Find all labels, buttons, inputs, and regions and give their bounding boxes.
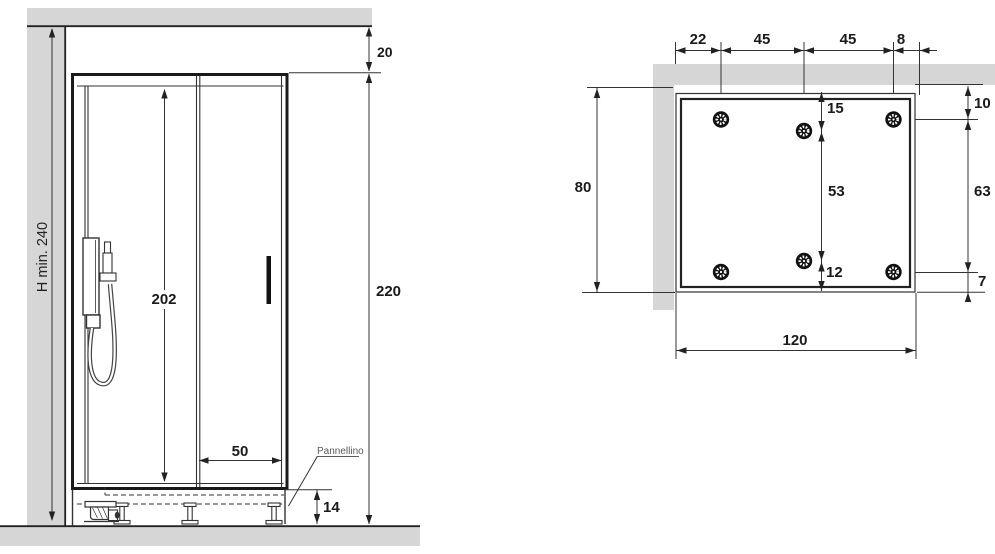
- inner-span-label: 53: [828, 183, 845, 200]
- tray-outer-edge: [676, 94, 915, 293]
- fixing-point-icon: [796, 123, 812, 139]
- total-height-label: 220: [376, 283, 401, 300]
- tray-width-label: 120: [782, 332, 807, 349]
- inner-offset-top-label: 15: [827, 100, 844, 117]
- front-view: H min. 240 20 220 202 50 14 Pannellino: [0, 8, 420, 546]
- right-offset-bottom-label: 7: [978, 273, 986, 290]
- adjustable-feet-icons: [114, 503, 282, 524]
- right-offset-top-label: 10: [974, 95, 991, 112]
- drawing-canvas: H min. 240 20 220 202 50 14 Pannellino: [0, 0, 995, 554]
- fixing-point-icon: [713, 264, 729, 280]
- tray-base: [73, 487, 286, 526]
- door-handle: [267, 256, 272, 304]
- chain-label-3: 45: [840, 31, 857, 48]
- chain-label-4: 8: [897, 31, 905, 48]
- base-height-label: 14: [323, 499, 340, 516]
- installation-diagram: H min. 240 20 220 202 50 14 Pannellino: [0, 0, 995, 554]
- chain-label-1: 22: [690, 31, 707, 48]
- floor-band: [0, 527, 420, 546]
- opening-height-label: 202: [151, 291, 176, 308]
- fixing-point-icon: [885, 264, 901, 280]
- ceiling-band: [27, 8, 372, 26]
- drain-trap-icon: [84, 502, 120, 522]
- chain-label-2: 45: [754, 31, 771, 48]
- fixing-point-icon: [713, 111, 729, 127]
- door-width-label: 50: [232, 443, 249, 460]
- fixing-point-icon: [796, 253, 812, 269]
- fixing-point-icon: [885, 111, 901, 127]
- plan-view: 22 45 45 8 80 15 53 12 10 63 7 120: [575, 31, 995, 359]
- shower-tray: [676, 94, 915, 293]
- right-span-label: 63: [974, 183, 991, 200]
- callout-leader-line: [289, 457, 318, 506]
- plan-top-wall: [653, 64, 995, 85]
- plan-left-wall: [653, 64, 674, 310]
- inner-offset-bottom-label: 12: [826, 264, 843, 281]
- panel-note-label: Pannellino: [317, 446, 364, 457]
- top-gap-label: 20: [377, 44, 393, 60]
- panel-callout: Pannellino: [289, 446, 365, 506]
- depth-total-label: 80: [575, 179, 592, 196]
- wall-height-label: H min. 240: [35, 222, 51, 292]
